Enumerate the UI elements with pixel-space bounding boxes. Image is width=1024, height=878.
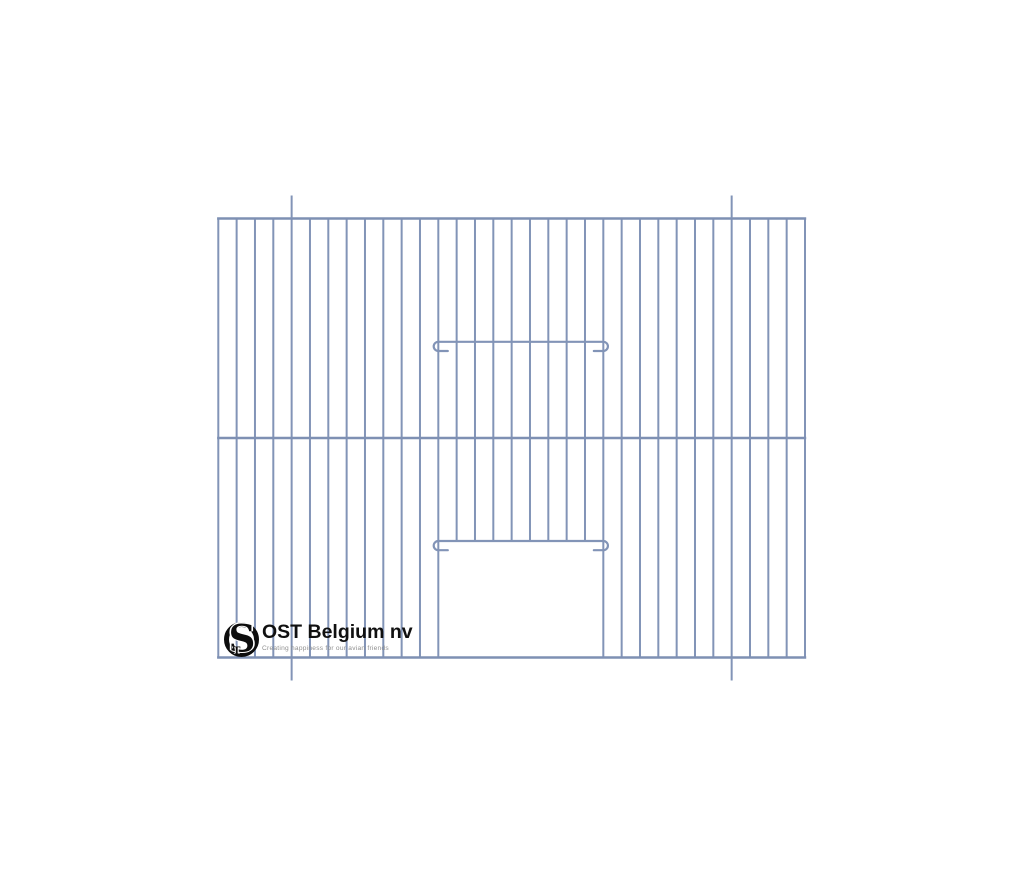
ost-logo-monogram: S T [224, 621, 260, 658]
cage-front-diagram [0, 0, 1024, 878]
door-slider-wire [434, 541, 608, 550]
ost-logo: S T OST Belgium nv Creating happiness fo… [224, 621, 413, 658]
company-name: OST Belgium nv [262, 623, 413, 642]
logo-letter-t: T [233, 647, 240, 657]
logo-text-block: OST Belgium nv Creating happiness for ou… [262, 621, 413, 652]
door-slider-wire [434, 342, 608, 351]
company-tagline: Creating happiness for our avian friends [262, 645, 413, 652]
product-drawing-page: S T OST Belgium nv Creating happiness fo… [0, 0, 1024, 878]
